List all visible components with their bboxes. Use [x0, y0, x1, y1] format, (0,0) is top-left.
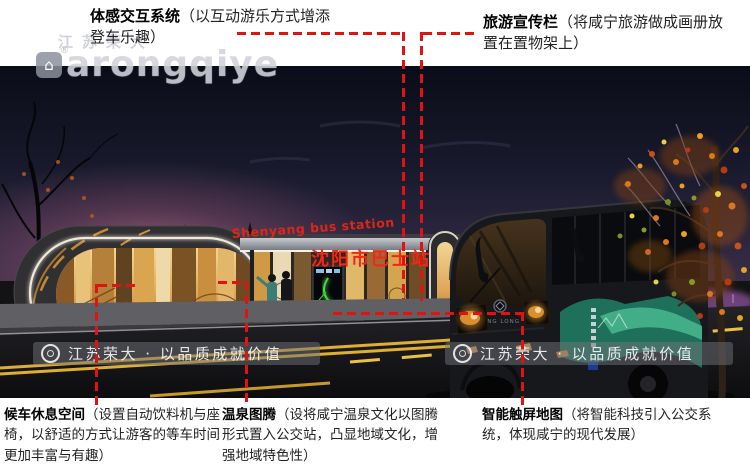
watermark-house-icon: ⌂ — [36, 52, 62, 78]
leader-line-bottom-right-v — [521, 312, 524, 407]
leader-line-bottom-middle-h — [218, 281, 248, 284]
callout-top-right: 旅游宣传栏（将咸宁旅游做成画册放置在置物架上） — [483, 12, 735, 55]
callout-title: 智能触屏地图 — [482, 407, 563, 423]
leader-line-bottom-middle-v — [245, 281, 248, 407]
leader-line-top-right-v — [420, 32, 423, 301]
callout-bottom-middle: 温泉图腾（设将咸宁温泉文化以图腾形式置入公交站，凸显地域文化，增强地域特色性） — [222, 405, 446, 466]
callout-title: 旅游宣传栏 — [483, 13, 558, 31]
leader-line-bottom-left-v — [95, 284, 98, 407]
watermark-bar-text: 江苏荣大 · 以品质成就价值 — [480, 343, 694, 364]
callout-bottom-left: 候车休息空间（设置自动饮料机与座椅，以舒适的方式让游客的等车时间更加丰富与有趣） — [4, 405, 228, 466]
leader-line-bottom-right-h — [333, 312, 523, 315]
callout-title: 候车休息空间 — [4, 407, 85, 423]
leader-line-bottom-left-h — [98, 284, 138, 287]
leader-line-top-left-h — [237, 32, 404, 35]
leader-line-top-right-h — [423, 32, 478, 35]
watermark-bar-text: 江苏荣大 · 以品质成就价值 — [68, 343, 282, 364]
watermark-bar-right: 江苏荣大 · 以品质成就价值 — [445, 342, 733, 365]
watermark-corner-latin: arongqiye — [66, 44, 279, 85]
callout-title: 体感交互系统 — [90, 7, 180, 25]
design-presentation-slide: Shenyang bus station 沈阳市巴士站 — [0, 0, 750, 472]
leader-line-top-left-v — [402, 32, 405, 299]
callout-title: 温泉图腾 — [222, 407, 276, 423]
station-sign-chinese: 沈阳市巴士站 — [311, 248, 431, 270]
watermark-bar-left: 江苏荣大 · 以品质成就价值 — [33, 342, 320, 365]
callout-top-left: 体感交互系统（以互动游乐方式增添登车乐趣） — [90, 6, 342, 49]
callout-bottom-right: 智能触屏地图（将智能科技引入公交系统，体现咸宁的现代发展） — [482, 405, 720, 446]
watermark-logo-icon — [41, 344, 60, 363]
watermark-logo-icon — [453, 344, 472, 363]
